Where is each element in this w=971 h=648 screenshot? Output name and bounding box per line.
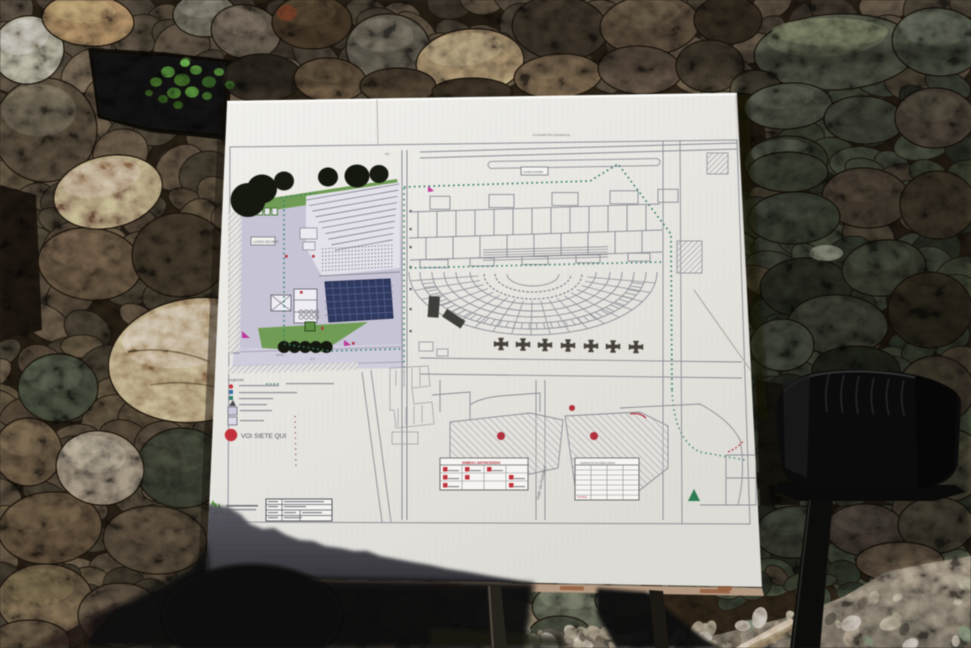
- svg-text:CAPACITA DI DEFLUSSO: CAPACITA DI DEFLUSSO: [580, 461, 616, 465]
- svg-text:SIMBOLI ANTINCENDIO: SIMBOLI ANTINCENDIO: [462, 461, 501, 465]
- svg-text:CABINA: CABINA: [230, 351, 240, 355]
- svg-text:PLANIMETRIA GENERALE: PLANIMETRIA GENERALE: [533, 133, 570, 137]
- svg-text:VIA E. ...: VIA E. ...: [276, 353, 288, 357]
- svg-text:VOI SIETE QUI: VOI SIETE QUI: [241, 433, 286, 440]
- svg-text:LUNGO DORA: LUNGO DORA: [523, 170, 543, 174]
- svg-text:LUOGO SICURO: LUOGO SICURO: [253, 240, 278, 244]
- svg-text:Legenda: Legenda: [228, 377, 244, 382]
- svg-text:RIO...: RIO...: [385, 152, 392, 156]
- svg-text:TOTALE: TOTALE: [577, 495, 587, 499]
- svg-text:O.T.: O.T.: [310, 357, 316, 361]
